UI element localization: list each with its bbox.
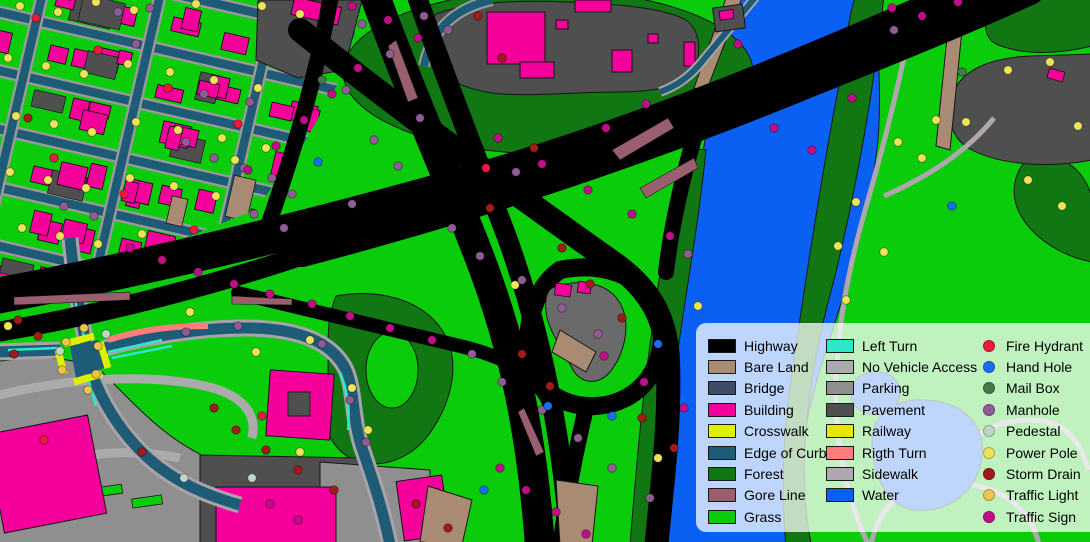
power-pole-marker	[170, 182, 179, 191]
legend-item-highway: Highway	[708, 335, 826, 356]
legend-label: Railway	[862, 424, 911, 438]
mail_box-dot-swatch	[983, 382, 995, 394]
hand-hole-marker	[654, 340, 663, 349]
manhole-marker	[288, 190, 297, 199]
traffic-sign-marker	[888, 4, 897, 13]
storm-drain-marker	[232, 426, 241, 435]
power-pole-marker	[1074, 122, 1083, 131]
power-pole-marker	[186, 308, 195, 317]
power-pole-marker	[82, 184, 91, 193]
parking-color-swatch	[826, 381, 854, 395]
fire-hydrant-marker	[40, 436, 49, 445]
storm-drain-marker	[330, 486, 339, 495]
power-pole-marker	[88, 128, 97, 137]
mail-box-marker	[318, 76, 327, 85]
legend-item-manhole: Manhole	[978, 399, 1090, 420]
power-pole-marker	[694, 302, 703, 311]
traffic-sign-marker	[126, 244, 135, 253]
gore_line-color-swatch	[708, 488, 736, 502]
bare_land-color-swatch	[708, 360, 736, 374]
map-canvas[interactable]: HighwayBare LandBridgeBuildingCrosswalkE…	[0, 0, 1090, 542]
legend-label: Left Turn	[862, 339, 917, 353]
hand-hole-marker	[608, 412, 617, 421]
manhole-marker	[416, 114, 425, 123]
legend-item-building: Building	[708, 399, 826, 420]
legend-label: Edge of Curb	[744, 446, 827, 460]
traffic-sign-marker	[494, 134, 503, 143]
legend-item-gore_line: Gore Line	[708, 485, 826, 506]
storm-drain-marker	[294, 466, 303, 475]
storm-drain-marker	[34, 332, 43, 341]
legend-label: No Vehicle Access	[862, 360, 977, 374]
traffic-sign-marker	[770, 124, 779, 133]
traffic-sign-marker	[600, 352, 609, 361]
power-pole-marker	[306, 336, 315, 345]
legend-item-railway: Railway	[826, 421, 978, 442]
pedestal-marker	[180, 474, 189, 483]
power-pole-marker	[4, 54, 13, 63]
manhole-marker	[468, 350, 477, 359]
legend-label: Fire Hydrant	[1006, 339, 1083, 353]
traffic-sign-marker	[386, 324, 395, 333]
water-color-swatch	[826, 488, 854, 502]
legend-item-left_turn: Left Turn	[826, 335, 978, 356]
power-pole-marker	[138, 230, 147, 239]
traffic-sign-marker	[680, 404, 689, 413]
hand-hole-marker	[480, 486, 489, 495]
manhole-marker	[250, 210, 259, 219]
manhole-marker	[182, 328, 191, 337]
power-pole-marker	[842, 296, 851, 305]
grass-hole	[366, 332, 418, 408]
legend-label: Power Pole	[1006, 446, 1078, 460]
manhole-marker	[348, 200, 357, 209]
traffic-sign-marker	[414, 34, 423, 43]
power-pole-marker	[210, 76, 219, 85]
manhole-marker	[498, 378, 507, 387]
legend-item-water: Water	[826, 485, 978, 506]
legend-label: Sidewalk	[862, 467, 918, 481]
manhole-marker	[386, 50, 395, 59]
power-pole-marker	[4, 322, 13, 331]
manhole-marker	[476, 252, 485, 261]
power-pole-marker	[56, 232, 65, 241]
fire-hydrant-marker	[482, 164, 491, 173]
legend-label: Pavement	[862, 403, 925, 417]
manhole-marker	[346, 396, 355, 405]
power-pole-marker	[126, 174, 135, 183]
hand_hole-dot-swatch	[983, 361, 995, 373]
storm-drain-marker	[138, 448, 147, 457]
manhole-dot-swatch	[983, 404, 995, 416]
legend-label: Gore Line	[744, 488, 805, 502]
traffic-sign-marker	[300, 116, 309, 125]
power-pole-marker	[80, 70, 89, 79]
fire-hydrant-marker	[234, 120, 243, 129]
manhole-marker	[512, 168, 521, 177]
no_vehicle_access-color-swatch	[826, 360, 854, 374]
traffic-light-marker	[94, 342, 103, 351]
power-pole-marker	[1058, 202, 1067, 211]
legend-column: Left TurnNo Vehicle AccessParkingPavemen…	[826, 335, 978, 532]
power-pole-marker	[132, 118, 141, 127]
power-pole-marker	[54, 8, 63, 17]
traffic-sign-marker	[552, 508, 561, 517]
manhole-marker	[518, 276, 527, 285]
legend-item-forest: Forest	[708, 463, 826, 484]
manhole-marker	[90, 212, 99, 221]
manhole-marker	[574, 434, 583, 443]
power-pole-marker	[654, 454, 663, 463]
legend-label: Pedestal	[1006, 424, 1060, 438]
traffic-light-marker	[92, 370, 101, 379]
power-pole-marker	[918, 154, 927, 163]
traffic-sign-marker	[954, 0, 963, 6]
traffic-sign-marker	[346, 312, 355, 321]
power-pole-marker	[166, 68, 175, 77]
legend-item-rigth_turn: Rigth Turn	[826, 442, 978, 463]
fire-hydrant-marker	[94, 46, 103, 55]
power-pole-marker	[94, 240, 103, 249]
power-pole-marker	[262, 144, 271, 153]
manhole-marker	[594, 330, 603, 339]
traffic-sign-marker	[230, 280, 239, 289]
forest-color-swatch	[708, 467, 736, 481]
legend-item-traffic_light: Traffic Light	[978, 485, 1090, 506]
traffic_light-dot-swatch	[983, 489, 995, 501]
bridge-color-swatch	[708, 381, 736, 395]
power-pole-marker	[1046, 58, 1055, 67]
power-pole-marker	[880, 248, 889, 257]
manhole-marker	[210, 154, 219, 163]
traffic-sign-marker	[158, 256, 167, 265]
legend-label: Parking	[862, 381, 909, 395]
storm-drain-marker	[498, 54, 507, 63]
storm_drain-dot-swatch	[983, 468, 995, 480]
traffic-sign-marker	[808, 146, 817, 155]
traffic-sign-marker	[354, 64, 363, 73]
fire-hydrant-marker	[32, 14, 41, 23]
storm-drain-marker	[210, 404, 219, 413]
traffic-sign-marker	[848, 94, 857, 103]
legend-item-fire_hydrant: Fire Hydrant	[978, 335, 1090, 356]
power-pole-marker	[44, 176, 53, 185]
power-pole-marker	[42, 62, 51, 71]
legend-label: Traffic Light	[1006, 488, 1078, 502]
power-pole-marker	[834, 242, 843, 251]
manhole-marker	[420, 12, 429, 21]
traffic-sign-marker	[308, 300, 317, 309]
left_turn-color-swatch	[826, 339, 854, 353]
manhole-marker	[646, 494, 655, 503]
legend-label: Building	[744, 403, 794, 417]
power-pole-marker	[12, 112, 21, 121]
storm-drain-marker	[486, 204, 495, 213]
hand-hole-marker	[314, 158, 323, 167]
building-courtyard	[288, 392, 310, 416]
legend-label: Rigth Turn	[862, 446, 927, 460]
legend-item-power_pole: Power Pole	[978, 442, 1090, 463]
power-pole-marker	[258, 2, 267, 11]
traffic-sign-marker	[194, 268, 203, 277]
grass-color-swatch	[708, 510, 736, 524]
storm-drain-marker	[262, 446, 271, 455]
hand-hole-marker	[544, 402, 553, 411]
traffic-sign-marker	[522, 486, 531, 495]
traffic-sign-marker	[602, 124, 611, 133]
sidewalk-color-swatch	[826, 467, 854, 481]
manhole-marker	[558, 304, 567, 313]
legend-label: Water	[862, 488, 899, 502]
railway-color-swatch	[826, 424, 854, 438]
power-pole-marker	[852, 198, 861, 207]
traffic-sign-marker	[348, 2, 357, 11]
traffic-sign-marker	[328, 90, 337, 99]
manhole-marker	[684, 250, 693, 259]
power-pole-marker	[130, 6, 139, 15]
power-pole-marker	[16, 2, 25, 11]
hand-hole-marker	[948, 202, 957, 211]
power-pole-marker	[192, 0, 201, 8]
legend-item-grass: Grass	[708, 506, 826, 527]
bare-land-bottom-center	[556, 480, 598, 542]
legend-label: Highway	[744, 339, 798, 353]
edge_of_curb-color-swatch	[708, 446, 736, 460]
traffic-sign-marker	[384, 16, 393, 25]
legend-item-storm_drain: Storm Drain	[978, 463, 1090, 484]
legend-item-pedestal: Pedestal	[978, 421, 1090, 442]
legend-label: Forest	[744, 467, 784, 481]
pedestal-dot-swatch	[983, 425, 995, 437]
pedestal-marker	[248, 474, 257, 483]
power-pole-marker	[894, 138, 903, 147]
rigth_turn-color-swatch	[826, 446, 854, 460]
manhole-marker	[132, 40, 141, 49]
manhole-marker	[60, 202, 69, 211]
legend-column: Fire HydrantHand HoleMail BoxManholePede…	[978, 335, 1090, 532]
traffic-sign-marker	[628, 210, 637, 219]
manhole-marker	[608, 464, 617, 473]
storm-drain-marker	[474, 12, 483, 21]
manhole-marker	[146, 4, 155, 13]
manhole-marker	[890, 26, 899, 35]
manhole-marker	[444, 26, 453, 35]
power-pole-marker	[962, 118, 971, 127]
fire-hydrant-marker	[190, 226, 199, 235]
legend-item-hand_hole: Hand Hole	[978, 356, 1090, 377]
storm-drain-marker	[586, 280, 595, 289]
manhole-marker	[280, 224, 289, 233]
power-pole-marker	[1024, 176, 1033, 185]
legend-item-no_vehicle_access: No Vehicle Access	[826, 356, 978, 377]
power_pole-dot-swatch	[983, 447, 995, 459]
legend-item-edge_of_curb: Edge of Curb	[708, 442, 826, 463]
crosswalk-color-swatch	[708, 424, 736, 438]
manhole-marker	[200, 90, 209, 99]
legend-label: Crosswalk	[744, 424, 809, 438]
pedestal-marker	[102, 330, 111, 339]
legend-label: Bare Land	[744, 360, 809, 374]
manhole-marker	[362, 438, 371, 447]
legend-column: HighwayBare LandBridgeBuildingCrosswalkE…	[708, 335, 826, 532]
traffic-light-marker	[62, 338, 71, 347]
traffic-sign-marker	[496, 464, 505, 473]
power-pole-marker	[218, 134, 227, 143]
mail-box-marker	[958, 68, 967, 77]
traffic-sign-marker	[584, 186, 593, 195]
power-pole-marker	[252, 348, 261, 357]
legend-item-parking: Parking	[826, 378, 978, 399]
traffic-light-marker	[58, 366, 67, 375]
traffic-sign-marker	[428, 336, 437, 345]
legend-item-bare_land: Bare Land	[708, 356, 826, 377]
power-pole-marker	[174, 126, 183, 135]
storm-drain-marker	[518, 350, 527, 359]
pedestal-marker	[56, 347, 65, 356]
storm-drain-marker	[24, 114, 33, 123]
legend-item-bridge: Bridge	[708, 378, 826, 399]
power-pole-marker	[932, 116, 941, 125]
legend-label: Bridge	[744, 381, 784, 395]
manhole-marker	[394, 162, 403, 171]
legend-label: Mail Box	[1006, 381, 1060, 395]
power-pole-marker	[50, 120, 59, 129]
storm-drain-marker	[10, 350, 19, 359]
storm-drain-marker	[638, 414, 647, 423]
legend-item-mail_box: Mail Box	[978, 378, 1090, 399]
legend-item-crosswalk: Crosswalk	[708, 421, 826, 442]
manhole-marker	[234, 322, 243, 331]
traffic-sign-marker	[734, 40, 743, 49]
traffic-sign-marker	[272, 142, 281, 151]
storm-drain-marker	[412, 500, 421, 509]
traffic-sign-marker	[642, 100, 651, 109]
storm-drain-marker	[14, 316, 23, 325]
traffic-sign-marker	[266, 290, 275, 299]
manhole-marker	[114, 8, 123, 17]
manhole-marker	[342, 86, 351, 95]
power-pole-marker	[1004, 66, 1013, 75]
highway-color-swatch	[708, 339, 736, 353]
storm-drain-marker	[530, 144, 539, 153]
manhole-marker	[370, 136, 379, 145]
fire-hydrant-marker	[120, 190, 129, 199]
traffic_sign-dot-swatch	[983, 511, 995, 523]
traffic-light-marker	[80, 324, 89, 333]
manhole-marker	[318, 340, 327, 349]
legend-label: Manhole	[1006, 403, 1060, 417]
power-pole-marker	[212, 192, 221, 201]
traffic-sign-marker	[294, 516, 303, 525]
fire-hydrant-marker	[258, 412, 267, 421]
legend-item-pavement: Pavement	[826, 399, 978, 420]
traffic-sign-marker	[244, 166, 253, 175]
fire_hydrant-dot-swatch	[983, 340, 995, 352]
traffic-sign-marker	[582, 530, 591, 539]
traffic-sign-marker	[266, 500, 275, 509]
manhole-marker	[358, 20, 367, 29]
power-pole-marker	[296, 10, 305, 19]
legend-label: Traffic Sign	[1006, 510, 1076, 524]
storm-drain-marker	[618, 314, 627, 323]
legend-item-sidewalk: Sidewalk	[826, 463, 978, 484]
fire-hydrant-marker	[164, 84, 173, 93]
legend-panel: HighwayBare LandBridgeBuildingCrosswalkE…	[696, 323, 1090, 532]
power-pole-marker	[6, 168, 15, 177]
manhole-marker	[268, 174, 277, 183]
legend-label: Storm Drain	[1006, 467, 1081, 481]
power-pole-marker	[124, 60, 133, 69]
building-color-swatch	[708, 403, 736, 417]
storm-drain-marker	[670, 444, 679, 453]
power-pole-marker	[18, 224, 27, 233]
fire-hydrant-marker	[50, 154, 59, 163]
pavement-color-swatch	[826, 403, 854, 417]
west-bank-building	[712, 4, 745, 32]
manhole-marker	[448, 224, 457, 233]
power-pole-marker	[254, 84, 263, 93]
traffic-sign-marker	[640, 378, 649, 387]
storm-drain-marker	[444, 524, 453, 533]
power-pole-marker	[92, 0, 101, 6]
traffic-sign-marker	[666, 232, 675, 241]
power-pole-marker	[296, 448, 305, 457]
pavement-top-lot	[431, 1, 698, 94]
storm-drain-marker	[546, 382, 555, 391]
legend-label: Hand Hole	[1006, 360, 1072, 374]
legend-item-traffic_sign: Traffic Sign	[978, 506, 1090, 527]
manhole-marker	[246, 98, 255, 107]
traffic-light-marker	[84, 386, 93, 395]
power-pole-marker	[348, 384, 357, 393]
legend-label: Grass	[744, 510, 781, 524]
manhole-marker	[182, 138, 191, 147]
power-pole-marker	[231, 156, 240, 165]
power-pole-marker	[364, 426, 373, 435]
traffic-sign-marker	[918, 12, 927, 21]
traffic-sign-marker	[538, 160, 547, 169]
storm-drain-marker	[558, 244, 567, 253]
